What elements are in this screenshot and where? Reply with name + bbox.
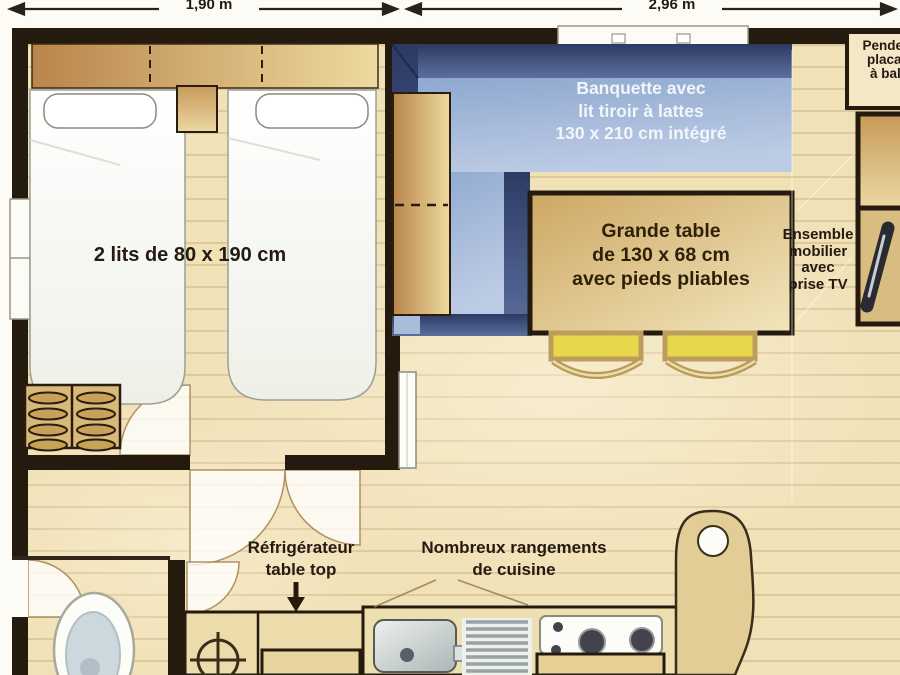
sink-drain (400, 648, 414, 662)
chair-right (665, 333, 755, 376)
wardrobe-line: Penderie (849, 39, 900, 53)
burner (579, 629, 605, 655)
drainer-panel (462, 618, 532, 675)
sink (374, 620, 463, 672)
wall-bedroom-bottom-left (12, 455, 190, 470)
kitchen-area (185, 511, 753, 675)
dimension-value: 2,96 m (649, 0, 696, 13)
kitchen-storage-label: Nombreux rangements de cuisine (403, 537, 625, 581)
slatted-rack (25, 385, 120, 451)
rack-slat (29, 393, 67, 404)
cabinet-unit (858, 114, 900, 208)
rack-slat (29, 409, 67, 420)
dimension-label-left: 1,90 m (159, 0, 259, 14)
wardrobe-label: Penderie placard à balai (849, 39, 900, 81)
floor-crease (798, 152, 856, 210)
tv-corner-label: Ensemble mobilier avec prise TV (768, 227, 868, 293)
banquette-label: Banquette avec lit tiroir à lattes 130 x… (496, 77, 786, 145)
fridge (262, 650, 360, 675)
kitchen-line: de cuisine (403, 559, 625, 581)
rack-slat (29, 440, 67, 451)
fridge-line: Réfrigérateur (225, 537, 377, 559)
window-latch-icon (677, 34, 690, 43)
rack-slat (77, 425, 115, 436)
nightstand (177, 86, 217, 132)
rack-slat (77, 409, 115, 420)
banquette-back-top (392, 44, 792, 78)
tv-corner-line: mobilier (768, 244, 868, 261)
dimension-label-right: 2,96 m (622, 0, 722, 14)
burner (630, 628, 654, 652)
fridge-label: Réfrigérateur table top (225, 537, 377, 581)
table-line: avec pieds pliables (540, 267, 782, 291)
arrow-head (287, 597, 305, 612)
tv-corner-line: avec (768, 260, 868, 277)
window-frame (558, 26, 748, 45)
arrow-right-icon (881, 4, 895, 15)
hob-cabinet (537, 654, 664, 675)
pillow-right (256, 94, 368, 128)
tv-corner-line: prise TV (768, 277, 868, 294)
radiator-panel (399, 372, 416, 468)
wardrobe-line: à balai (849, 67, 900, 81)
tv-corner-line: Ensemble (768, 227, 868, 244)
arrow-left-icon (10, 4, 24, 15)
banquette-line: lit tiroir à lattes (496, 100, 786, 123)
banquette-side-right (504, 168, 530, 336)
banquette-corner (394, 316, 420, 334)
draining-board (462, 618, 532, 675)
sink-tap (454, 646, 463, 661)
dimension-value: 1,90 m (186, 0, 233, 13)
sink-basin (374, 620, 456, 672)
pointer-line (458, 580, 528, 605)
chair-left (551, 333, 641, 376)
window-latch-icon (612, 34, 625, 43)
wall-wc-top (12, 556, 170, 560)
kitchen-line: Nombreux rangements (403, 537, 625, 559)
peninsula-hole (698, 526, 728, 556)
wardrobe-line: placard (849, 53, 900, 67)
wall-left-lower (12, 617, 28, 675)
hob-knob (553, 622, 563, 632)
chair-seat (551, 333, 641, 359)
entrance-door-opening (12, 560, 28, 617)
bedroom-label-text: 2 lits de 80 x 190 cm (94, 244, 286, 266)
table-line: Grande table (540, 219, 782, 243)
pointer-line (374, 580, 436, 607)
banquette-line: 130 x 210 cm intégré (496, 122, 786, 145)
arrow-left-icon (407, 4, 421, 15)
hob (540, 616, 662, 655)
floorplan: 1,90 m 2,96 m 2 lits de 80 x 190 cm Banq… (0, 0, 900, 675)
banquette-line: Banquette avec (496, 77, 786, 100)
rack-slat (29, 425, 67, 436)
wall-top-left (12, 28, 560, 44)
wall-left-upper (12, 28, 28, 200)
bedroom-label: 2 lits de 80 x 190 cm (30, 244, 350, 268)
fridge-arrow-icon (287, 582, 305, 612)
window-frame (10, 199, 30, 319)
headboard-shelf (32, 44, 378, 88)
chair-seat (665, 333, 755, 359)
rack-slat (77, 393, 115, 404)
arrow-right-icon (383, 4, 397, 15)
pillow-left (44, 94, 156, 128)
fridge-line: table top (225, 559, 377, 581)
wall-wc-right (168, 560, 185, 675)
peninsula-counter (676, 511, 753, 675)
table-label: Grande table de 130 x 68 cm avec pieds p… (540, 219, 782, 291)
wall-bedroom-bottom-right (285, 455, 400, 470)
window-top (558, 26, 748, 45)
table-line: de 130 x 68 cm (540, 243, 782, 267)
rack-slat (77, 440, 115, 451)
door-swing-hall (285, 470, 360, 545)
window-left (10, 199, 30, 319)
